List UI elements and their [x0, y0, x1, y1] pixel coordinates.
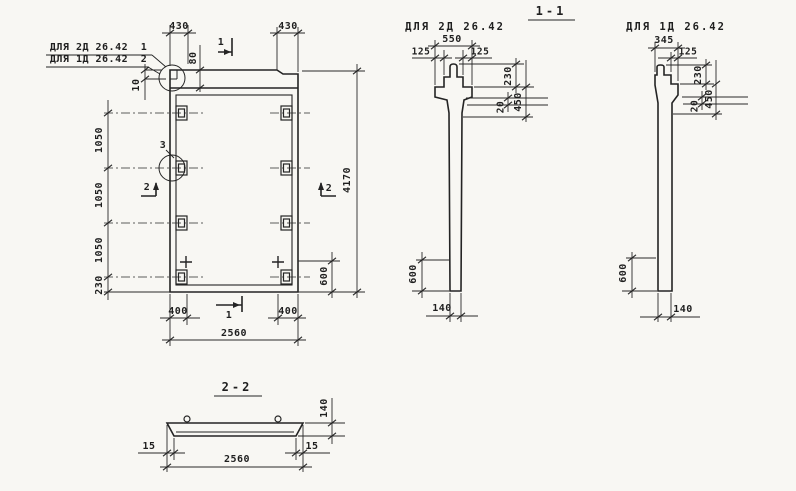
dim-125-2d-right: 125	[471, 47, 490, 57]
front-view-embed-plates	[176, 106, 292, 284]
section-2-mark-left-label: 2	[144, 183, 151, 193]
front-view-centerlines	[104, 113, 310, 277]
dim-400-right: 400	[278, 307, 298, 317]
lift-point-cross-right	[272, 256, 284, 268]
dim-230-2d: 230	[504, 66, 514, 86]
dim-140-2d: 140	[432, 304, 452, 314]
dim-345: 345	[654, 36, 674, 46]
note-for-2d-text: ДЛЯ 2Д 26.42	[50, 43, 128, 53]
dim-10: 10	[132, 78, 142, 91]
drawing-sheet: ДЛЯ 2Д 26.42 1 ДЛЯ 1Д 26.42 2 430 430 1 …	[0, 0, 796, 491]
note-for-2d-ref: 1	[141, 43, 148, 53]
front-view-outline	[170, 70, 298, 292]
dim-2560-front: 2560	[221, 329, 247, 339]
section-1-1-1d-header: ДЛЯ 1Д 26.42	[626, 22, 726, 33]
lift-point-cross-left	[180, 256, 192, 268]
note-for-1d-text: ДЛЯ 1Д 26.42	[50, 55, 128, 65]
dim-1050-3: 1050	[95, 237, 105, 263]
section-1-mark-top-label: 1	[218, 38, 225, 48]
dim-600-1d: 600	[619, 263, 629, 283]
detail-3-label: 3	[160, 141, 167, 151]
section-1-mark-bottom-label: 1	[226, 311, 233, 321]
section-1-1-1d-profile	[655, 65, 678, 291]
dim-600-front: 600	[320, 266, 330, 286]
dim-230-1d: 230	[694, 65, 704, 85]
lifting-loop-left	[184, 416, 190, 422]
dim-140-1d: 140	[673, 305, 693, 315]
lifting-loop-right	[275, 416, 281, 422]
section-1-1-1d-dimensions	[622, 42, 748, 322]
dim-125-2d-left: 125	[412, 47, 431, 57]
section-1-1-2d-dimensions	[412, 40, 548, 322]
drawing-canvas	[0, 0, 796, 491]
section-2-2-outline	[167, 416, 303, 436]
dim-230-front: 230	[95, 275, 105, 295]
dim-600-2d: 600	[409, 264, 419, 284]
dim-450-2d: 450	[514, 92, 524, 112]
section-1-1-2d-header: ДЛЯ 2Д 26.42	[405, 22, 505, 33]
dim-125-1d: 125	[679, 47, 698, 57]
dim-430-left: 430	[169, 22, 189, 32]
dim-15-right: 15	[305, 442, 318, 452]
dim-1050-2: 1050	[95, 182, 105, 208]
section-2-2-title: 2-2	[222, 381, 253, 393]
dim-1050-1: 1050	[95, 127, 105, 153]
dim-2560-slab: 2560	[224, 455, 250, 465]
dim-20-1d: 20	[690, 100, 700, 112]
dim-20-2d: 20	[496, 101, 506, 113]
dim-140-slab: 140	[320, 398, 330, 418]
dim-550: 550	[442, 35, 462, 45]
dim-450-1d: 450	[705, 89, 715, 109]
dim-15-left: 15	[142, 442, 155, 452]
section-1-1-title: 1-1	[536, 5, 567, 17]
dim-80: 80	[189, 51, 199, 64]
front-view-marks	[46, 55, 284, 268]
dim-430-right: 430	[278, 22, 298, 32]
dim-400-left: 400	[168, 307, 188, 317]
section-2-mark-right-label: 2	[326, 184, 333, 194]
dim-4170: 4170	[343, 167, 353, 193]
note-for-1d-ref: 2	[141, 55, 148, 65]
detail-circle-top	[159, 65, 185, 91]
